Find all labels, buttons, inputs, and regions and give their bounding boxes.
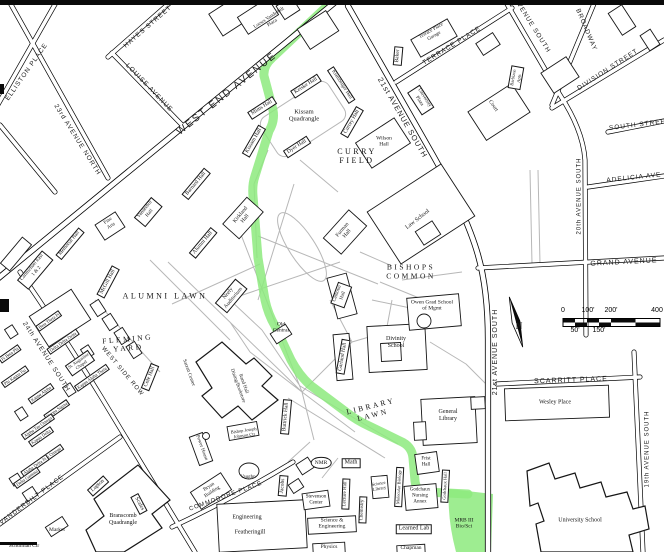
highlighted-route (253, 0, 493, 552)
building-footprints (0, 0, 659, 552)
north-arrow-icon (505, 296, 526, 348)
scale-bar (563, 319, 660, 327)
top-black-bar (0, 0, 664, 5)
map-canvas (0, 0, 664, 552)
campus-map: ELLISTON PLACE23rd AVENUE NORTHHAYES STR… (0, 0, 664, 552)
